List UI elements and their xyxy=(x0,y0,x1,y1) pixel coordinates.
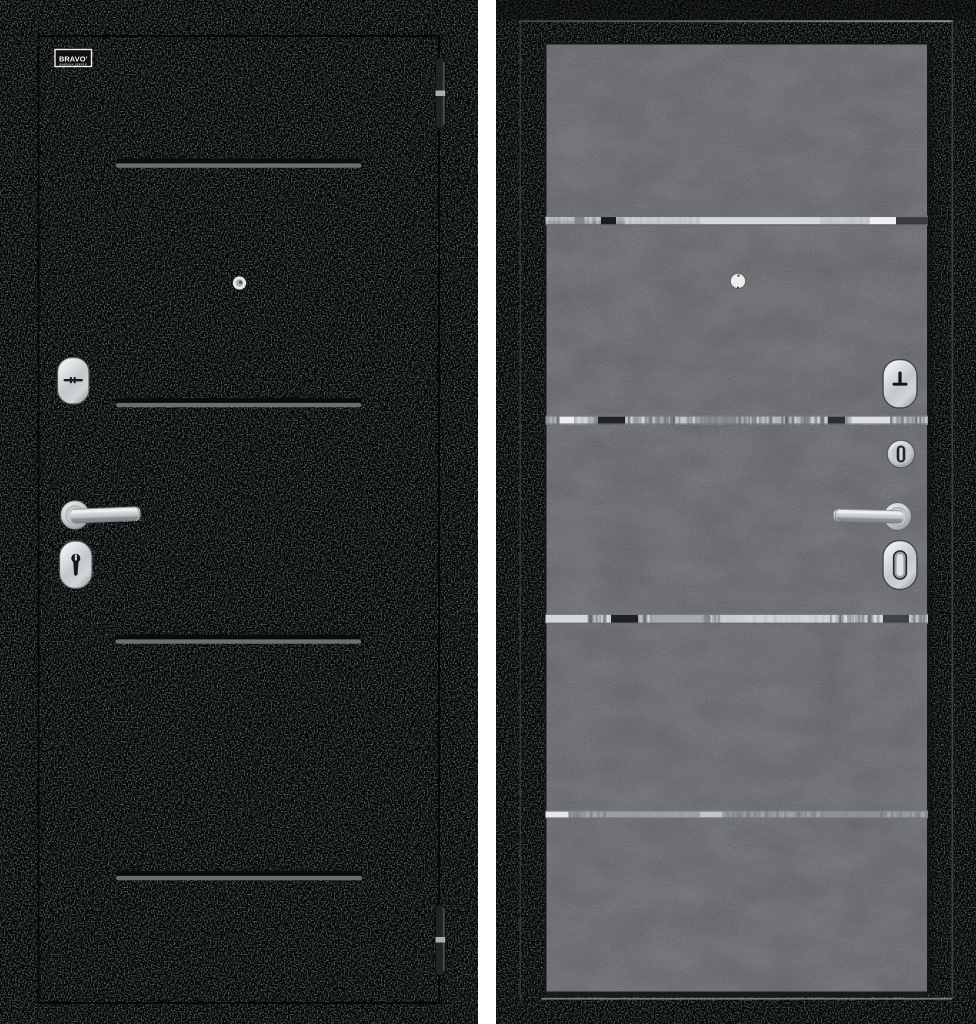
svg-text:ФАБРИКА ДВЕРЕЙ: ФАБРИКА ДВЕРЕЙ xyxy=(59,62,87,66)
svg-text:BRAVO': BRAVO' xyxy=(59,54,88,63)
